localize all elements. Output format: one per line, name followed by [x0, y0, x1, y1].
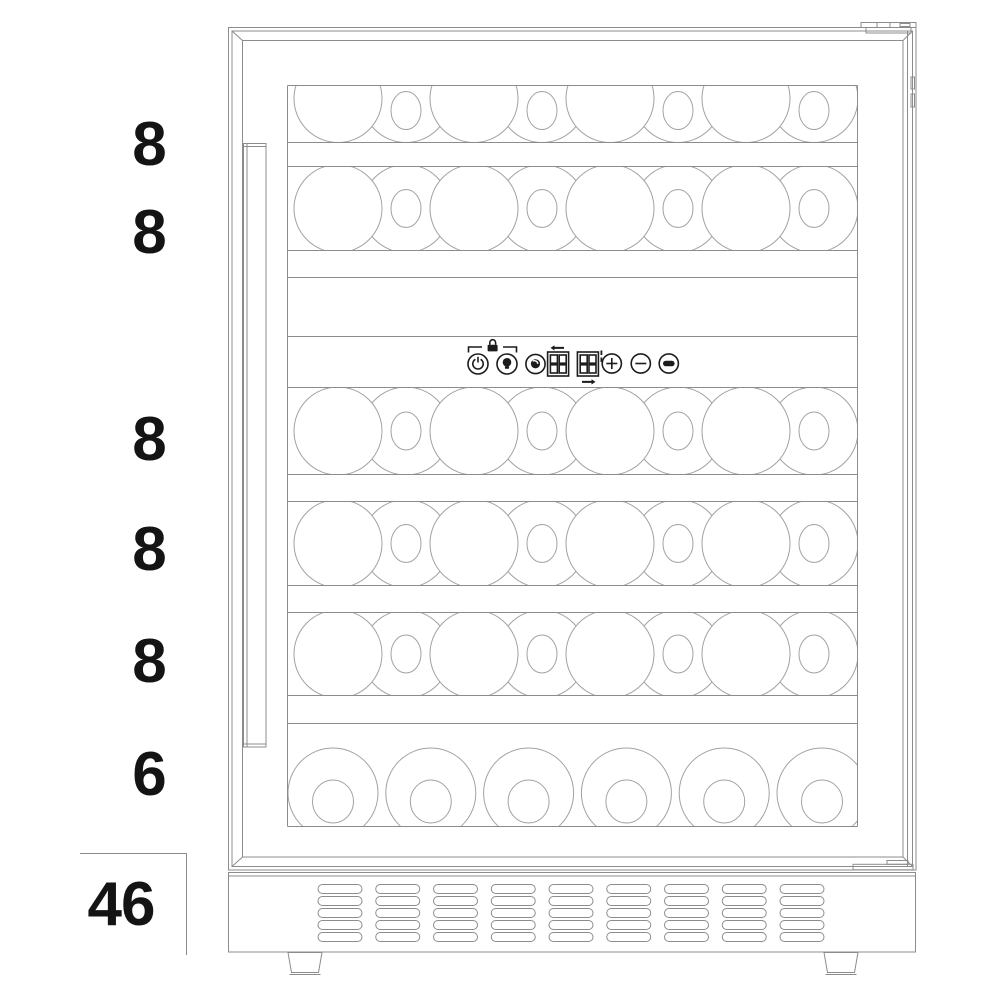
- bottle-row: [294, 387, 858, 475]
- bottle-row: [294, 500, 858, 588]
- bottle-row: [294, 165, 858, 253]
- bottle-row: [288, 748, 867, 838]
- door-handle: [244, 144, 267, 748]
- increase-button-icon: [602, 354, 621, 373]
- bottom-hinge: [853, 861, 913, 870]
- interior-light-button-icon: [659, 354, 678, 373]
- diagram-canvas: 8 8 8 8 8 6 46: [0, 0, 1000, 1000]
- right-foot: [824, 953, 858, 975]
- wine-cooler-drawing: [0, 0, 1000, 1000]
- lower-zone-indicator-icon: [582, 379, 596, 384]
- lock-icon: [469, 340, 517, 353]
- left-foot: [288, 953, 322, 975]
- lower-zone-display: [577, 351, 602, 385]
- vent-grille: [318, 885, 824, 942]
- upper-zone-indicator-icon: [551, 345, 565, 350]
- bottle-row: [294, 610, 858, 698]
- decrease-button-icon: [631, 354, 650, 373]
- bottle-row: [294, 55, 858, 143]
- power-button-icon: [468, 354, 488, 374]
- temperature-sensor-button-icon: [526, 354, 545, 373]
- upper-zone-display: [548, 345, 569, 376]
- control-panel: [468, 340, 678, 385]
- light-bulb-button-icon: [497, 354, 517, 374]
